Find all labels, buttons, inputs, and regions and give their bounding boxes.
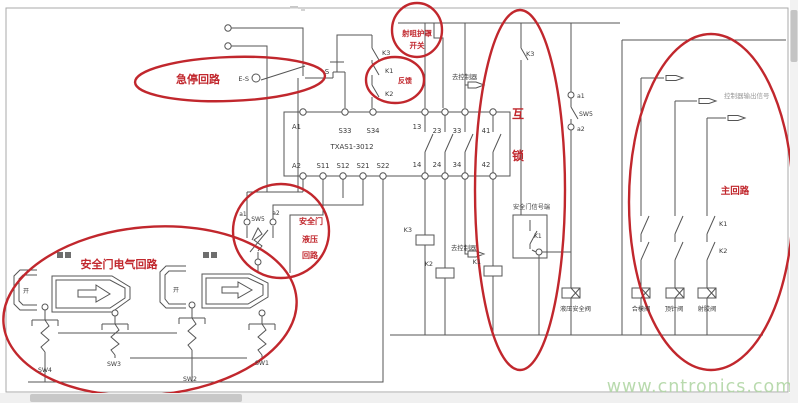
sw5-switch-label: SW5 (579, 111, 593, 118)
drawing-canvas (6, 8, 788, 392)
relay-23: 23 (433, 127, 442, 135)
valve-ejector-label: 顶针阀 (665, 305, 684, 313)
artifact-mark (301, 9, 305, 11)
k2-feedback-label: K2 (385, 90, 393, 98)
relay-34: 34 (453, 161, 462, 169)
hyd-a1-label: a1 (239, 211, 247, 218)
k1-main-contact-label: K1 (719, 220, 727, 228)
relay-a2: A2 (292, 162, 301, 170)
valve-clamp-label: 合模阀 (632, 305, 651, 313)
k1-feedback-label: K1 (385, 67, 393, 75)
sw4-label: SW4 (38, 367, 52, 374)
artifact-mark (290, 6, 298, 9)
horizontal-scrollbar-thumb[interactable] (30, 394, 242, 402)
to-controller-mid-label: 去控制器 (451, 243, 477, 252)
illegible-door-label (65, 252, 71, 258)
hydraulic-loop-label-2: 液压 (302, 234, 318, 244)
relay-s21: S21 (357, 162, 370, 170)
vertical-scrollbar-thumb[interactable] (791, 10, 798, 62)
sw3-label: SW3 (107, 361, 121, 368)
relay-41: 41 (482, 127, 491, 135)
coil-k1 (484, 266, 502, 276)
illegible-door-label (203, 252, 209, 258)
start-button-label: S (325, 68, 330, 76)
hyd-a2-label: a2 (272, 210, 280, 217)
feedback-label: 反馈 (398, 76, 412, 85)
circuit-schematic: 急停回路 射咀护罩 开关 反馈 互 锁 安全门 液压 回路 安全门电气回路 主回… (0, 0, 798, 403)
valve-hydraulic-safety-label: 液压安全阀 (560, 305, 591, 313)
hyd-sw5-label: SW5 (251, 216, 265, 223)
door-open-label-2: 开 (173, 287, 179, 294)
controller-output-label: 控制器输出信号 (724, 91, 770, 100)
illegible-door-label (211, 252, 217, 258)
hydraulic-loop-label-3: 回路 (302, 250, 319, 260)
coil-k2-label: K2 (425, 260, 433, 268)
relay-s34: S34 (367, 127, 380, 135)
relay-s22: S22 (377, 162, 390, 170)
a2-terminal-label: a2 (577, 126, 585, 133)
coil-k2 (436, 268, 454, 278)
sw1-label: SW1 (255, 360, 269, 367)
nozzle-guard-label-2: 开关 (410, 40, 425, 50)
coil-k3 (416, 235, 434, 245)
illegible-door-label (57, 252, 63, 258)
relay-13: 13 (413, 123, 422, 131)
hydraulic-loop-label-1: 安全门 (299, 216, 323, 226)
interlock-label-2: 锁 (512, 148, 524, 163)
k2-main-contact-label: K2 (719, 247, 727, 255)
valve-injection-label: 射胶阀 (698, 305, 717, 313)
relay-24: 24 (433, 161, 442, 169)
relay-model: TXAS1-3012 (329, 143, 373, 151)
k1-signal-contact-label: K1 (534, 233, 542, 240)
k3-contact-label: K3 (382, 49, 390, 57)
k3-mid-contact-label: K3 (526, 50, 534, 58)
relay-14: 14 (413, 161, 422, 169)
relay-s12: S12 (337, 162, 350, 170)
door-open-label-1: 开 (23, 288, 29, 295)
sw2-label: SW2 (183, 376, 197, 383)
relay-s11: S11 (317, 162, 330, 170)
relay-42: 42 (482, 161, 491, 169)
main-circuit-label: 主回路 (721, 185, 750, 197)
signal-box-label: 安全门信号端 (513, 203, 550, 211)
door-electrical-label: 安全门电气回路 (81, 257, 159, 271)
coil-k1-label: K1 (473, 258, 481, 266)
to-controller-top-label: 去控制器 (452, 72, 478, 81)
estop-device-label: E-S (238, 75, 249, 83)
nozzle-guard-label-1: 射咀护罩 (401, 28, 432, 38)
relay-a1: A1 (292, 123, 301, 131)
relay-33: 33 (453, 127, 462, 135)
estop-button-icon (252, 74, 260, 82)
schematic-viewer: 急停回路 射咀护罩 开关 反馈 互 锁 安全门 液压 回路 安全门电气回路 主回… (0, 0, 798, 403)
interlock-label-1: 互 (512, 107, 524, 121)
coil-k3-label: K3 (404, 226, 412, 234)
a1-terminal-label: a1 (577, 93, 585, 100)
relay-s33: S33 (339, 127, 352, 135)
estop-loop-label: 急停回路 (176, 72, 221, 86)
